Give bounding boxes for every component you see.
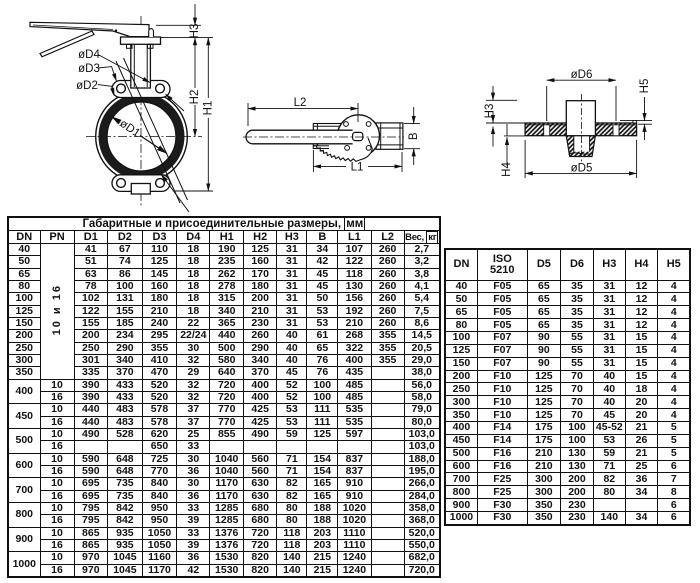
svg-text:B: B — [408, 132, 420, 140]
svg-text:øD3: øD3 — [78, 63, 100, 75]
svg-text:øD6: øD6 — [571, 69, 593, 81]
svg-text:øD2: øD2 — [76, 80, 98, 92]
svg-text:H3: H3 — [484, 104, 496, 119]
svg-text:H5: H5 — [639, 79, 651, 94]
svg-text:H2: H2 — [189, 90, 201, 105]
svg-text:øD5: øD5 — [571, 163, 593, 175]
svg-text:H3: H3 — [189, 24, 201, 39]
svg-text:L1: L1 — [351, 162, 364, 174]
svg-text:L2: L2 — [294, 97, 307, 109]
svg-text:H1: H1 — [203, 101, 215, 116]
svg-text:H4: H4 — [501, 162, 513, 177]
svg-text:øD4: øD4 — [78, 49, 100, 61]
